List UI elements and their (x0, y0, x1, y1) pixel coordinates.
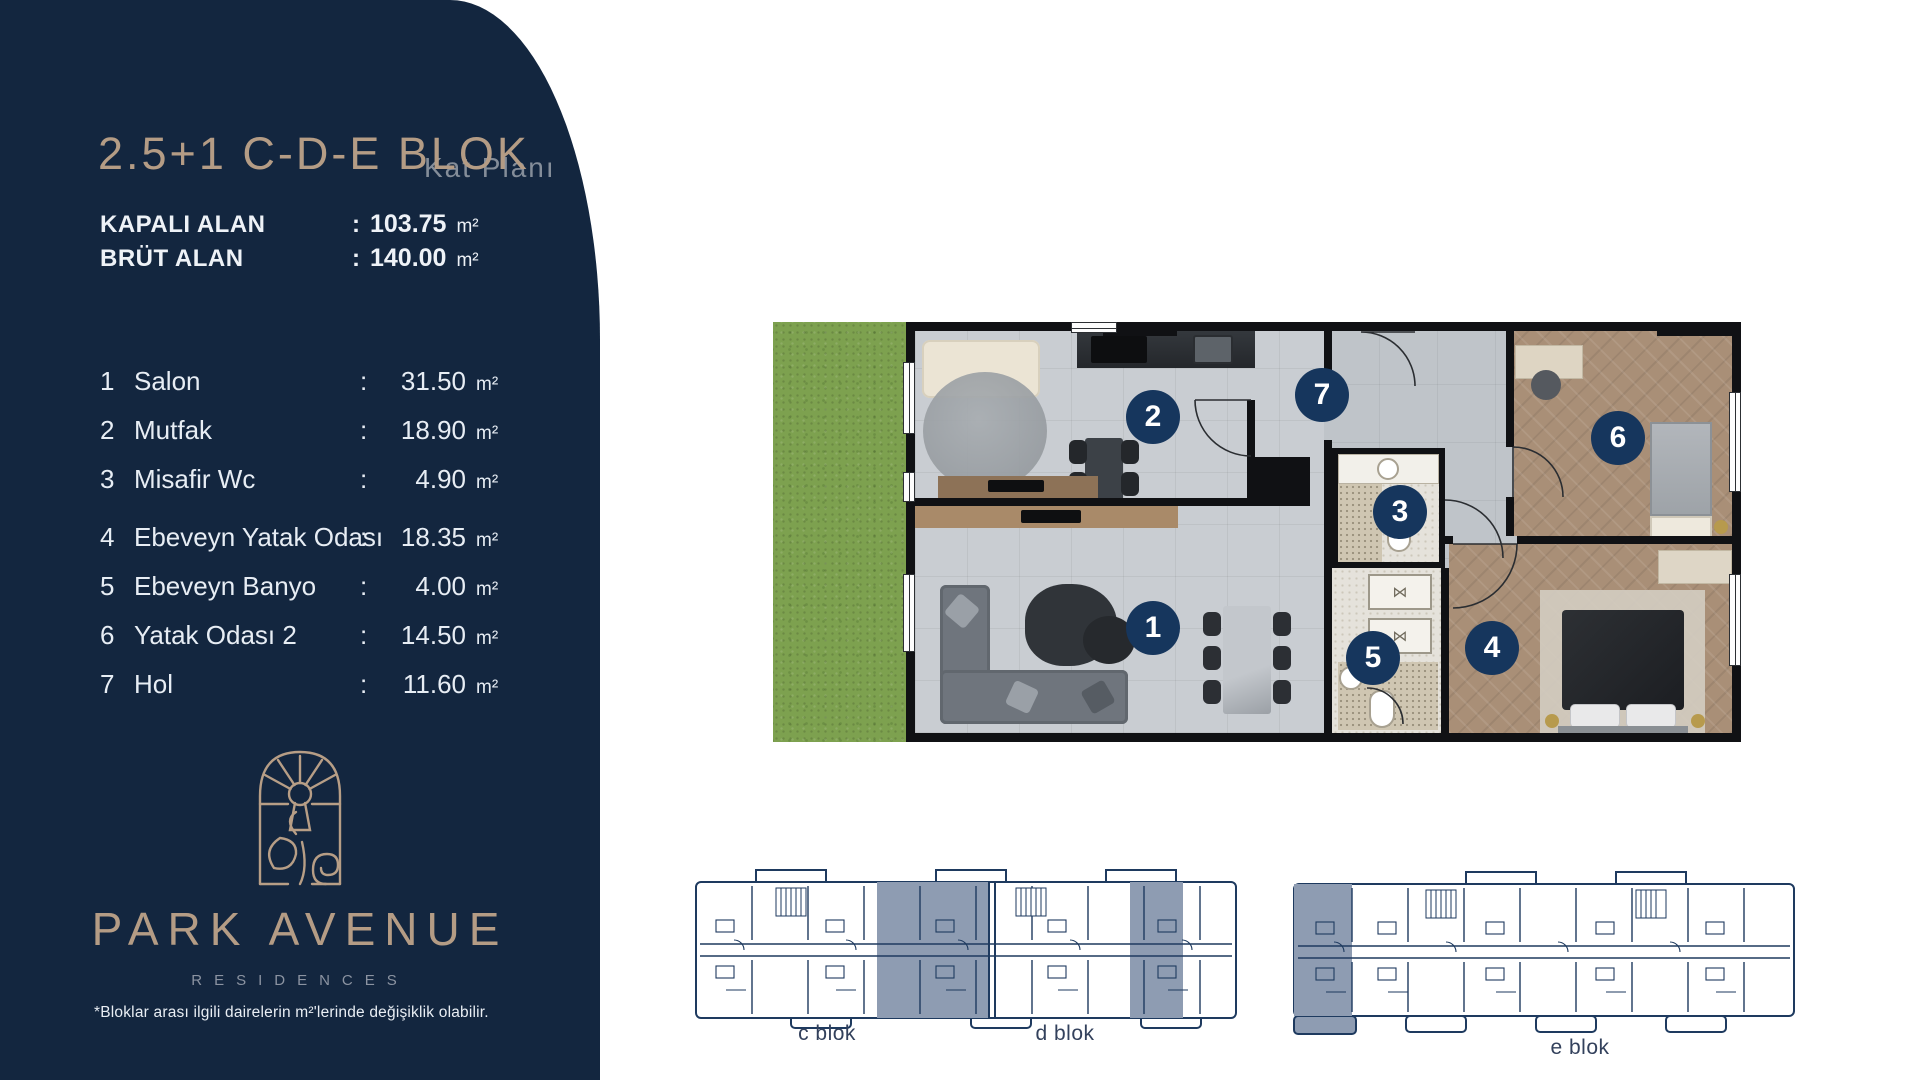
chair (1069, 440, 1087, 464)
rug-round (923, 372, 1047, 490)
wall (915, 498, 1250, 506)
page: Kat Planı 2.5+1 C-D-E BLOK KAPALI ALAN :… (0, 0, 1920, 1080)
washer-icon: ⋈ (1368, 574, 1432, 610)
brand-name: PARK AVENUE (0, 902, 600, 956)
window (1071, 322, 1117, 333)
colon: : (360, 669, 374, 700)
colon: : (360, 464, 374, 495)
chair (1121, 472, 1139, 496)
wall (1506, 331, 1514, 447)
room-row: 4 Ebeveyn Yatak Odası : 18.35 m² (100, 522, 560, 571)
bath-sink (1377, 458, 1399, 480)
room-badge-6: 6 (1591, 411, 1645, 465)
area-unit: m² (476, 423, 498, 445)
chair (1273, 680, 1291, 704)
room-row: 7 Hol : 11.60 m² (100, 669, 560, 718)
lamp (1714, 520, 1728, 534)
chair (1203, 680, 1221, 704)
block-label-e: e blok (1510, 1036, 1650, 1060)
room-row: 6 Yatak Odası 2 : 14.50 m² (100, 620, 560, 669)
area-unit: m² (476, 374, 498, 396)
disclaimer-footnote: *Bloklar arası ilgili dairelerin m²'leri… (94, 1004, 489, 1022)
bed-pillow (1626, 704, 1676, 728)
colon: : (360, 620, 374, 651)
window (1729, 392, 1741, 492)
area-unit: m² (456, 216, 478, 238)
room-area: 11.60 (374, 669, 466, 700)
room-list: 1 Salon : 31.50 m² 2 Mutfak : 18.90 m² 3… (100, 366, 560, 718)
room-number: 4 (100, 522, 126, 553)
wall (1324, 440, 1332, 733)
room-area: 4.90 (374, 464, 466, 495)
room-name: Salon (134, 366, 360, 397)
room-name: Hol (134, 669, 360, 700)
garden-strip (773, 322, 906, 742)
toilet (1369, 690, 1395, 728)
room-badge-7: 7 (1295, 368, 1349, 422)
utility-shaft (1253, 457, 1310, 506)
room-name: Ebeveyn Banyo (134, 571, 360, 602)
area-unit: m² (476, 579, 498, 601)
area-unit: m² (476, 472, 498, 494)
double-bed-duvet (1562, 610, 1684, 710)
room-number: 1 (100, 366, 126, 397)
room-row: 1 Salon : 31.50 m² (100, 366, 560, 415)
desk-chair (1531, 370, 1561, 400)
room-badge-2: 2 (1126, 390, 1180, 444)
lamp (1691, 714, 1705, 728)
wall (1445, 536, 1453, 544)
chair (1121, 440, 1139, 464)
sidebar-panel: Kat Planı 2.5+1 C-D-E BLOK KAPALI ALAN :… (0, 0, 600, 1080)
summary-row: KAPALI ALAN : 103.75 m² (100, 210, 540, 244)
colon: : (352, 245, 360, 273)
area-unit: m² (476, 677, 498, 699)
colon: : (360, 366, 374, 397)
tv (988, 480, 1044, 492)
brand-logo: PARK AVENUE RESIDENCES (0, 742, 600, 989)
room-name: Mutfak (134, 415, 360, 446)
colon: : (352, 211, 360, 239)
wall-notch (1657, 322, 1732, 336)
dresser (1658, 550, 1732, 584)
single-bed (1650, 422, 1712, 516)
brand-subname: RESIDENCES (0, 972, 600, 989)
block-plan-e (1286, 858, 1806, 1048)
room-number: 2 (100, 415, 126, 446)
page-title: 2.5+1 C-D-E BLOK (98, 128, 530, 180)
tv (1021, 510, 1081, 523)
chair (1273, 612, 1291, 636)
summary-row: BRÜT ALAN : 140.00 m² (100, 244, 540, 278)
room-row: 5 Ebeveyn Banyo : 4.00 m² (100, 571, 560, 620)
colon: : (360, 571, 374, 602)
room-row: 3 Misafir Wc : 4.90 m² (100, 464, 560, 513)
block-label-c: c blok (757, 1022, 897, 1046)
room-badge-1: 1 (1126, 601, 1180, 655)
cooktop (1091, 336, 1147, 363)
bed-pillow (1570, 704, 1620, 728)
chair (1203, 646, 1221, 670)
room-name: Yatak Odası 2 (134, 620, 360, 651)
room-area: 18.90 (374, 415, 466, 446)
room-area: 31.50 (374, 366, 466, 397)
area-unit: m² (476, 530, 498, 552)
colon: : (360, 415, 374, 446)
window (903, 472, 915, 502)
area-unit: m² (476, 628, 498, 650)
area-unit: m² (456, 250, 478, 272)
area-summary: KAPALI ALAN : 103.75 m² BRÜT ALAN : 140.… (100, 210, 540, 278)
window (1729, 574, 1741, 666)
room-area: 4.00 (374, 571, 466, 602)
room-number: 6 (100, 620, 126, 651)
room-number: 7 (100, 669, 126, 700)
chair (1273, 646, 1291, 670)
room-name: Misafir Wc (134, 464, 360, 495)
room-row: 2 Mutfak : 18.90 m² (100, 415, 560, 464)
room-number: 3 (100, 464, 126, 495)
chair (1203, 612, 1221, 636)
kitchen-sink (1193, 335, 1233, 364)
room-area: 14.50 (374, 620, 466, 651)
park-avenue-logo-icon (250, 742, 350, 888)
room-badge-5: 5 (1346, 631, 1400, 685)
room-badge-4: 4 (1465, 621, 1519, 675)
room-name: Ebeveyn Yatak Odası (134, 522, 360, 553)
window (903, 574, 915, 652)
floor-plan: ⋈ ⋈ 1 2 3 4 5 6 (773, 322, 1741, 742)
summary-value: 103.75 (370, 210, 446, 239)
wall (1506, 497, 1514, 536)
room-area: 18.35 (374, 522, 466, 553)
summary-label: BRÜT ALAN (100, 245, 352, 273)
room-number: 5 (100, 571, 126, 602)
block-plan-cd (686, 858, 1246, 1038)
wall (1441, 568, 1449, 733)
wall (1324, 331, 1332, 370)
dining-table-salon (1223, 606, 1271, 714)
headboard (1558, 726, 1688, 733)
block-label-d: d blok (995, 1022, 1135, 1046)
summary-label: KAPALI ALAN (100, 211, 352, 239)
window (903, 362, 915, 434)
summary-value: 140.00 (370, 244, 446, 273)
wall (1517, 536, 1732, 544)
colon: : (360, 522, 374, 553)
lamp (1545, 714, 1559, 728)
room-badge-3: 3 (1373, 485, 1427, 539)
